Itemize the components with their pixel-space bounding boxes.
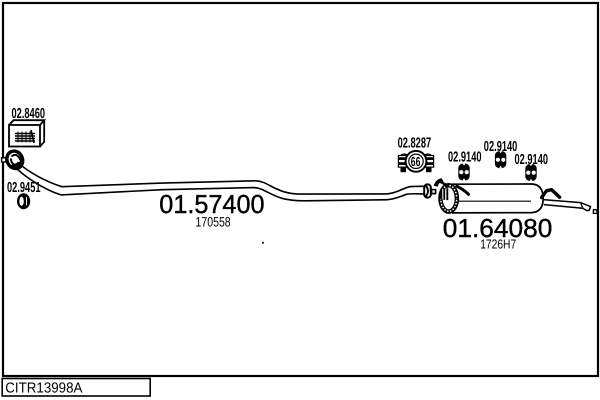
- svg-text:1726H7: 1726H7: [480, 237, 516, 252]
- svg-text:170558: 170558: [196, 215, 231, 230]
- svg-text:CITR13998A: CITR13998A: [5, 380, 82, 396]
- svg-text:02.8287: 02.8287: [398, 136, 432, 152]
- svg-text:66: 66: [411, 154, 421, 169]
- svg-text:02.9140: 02.9140: [448, 149, 482, 165]
